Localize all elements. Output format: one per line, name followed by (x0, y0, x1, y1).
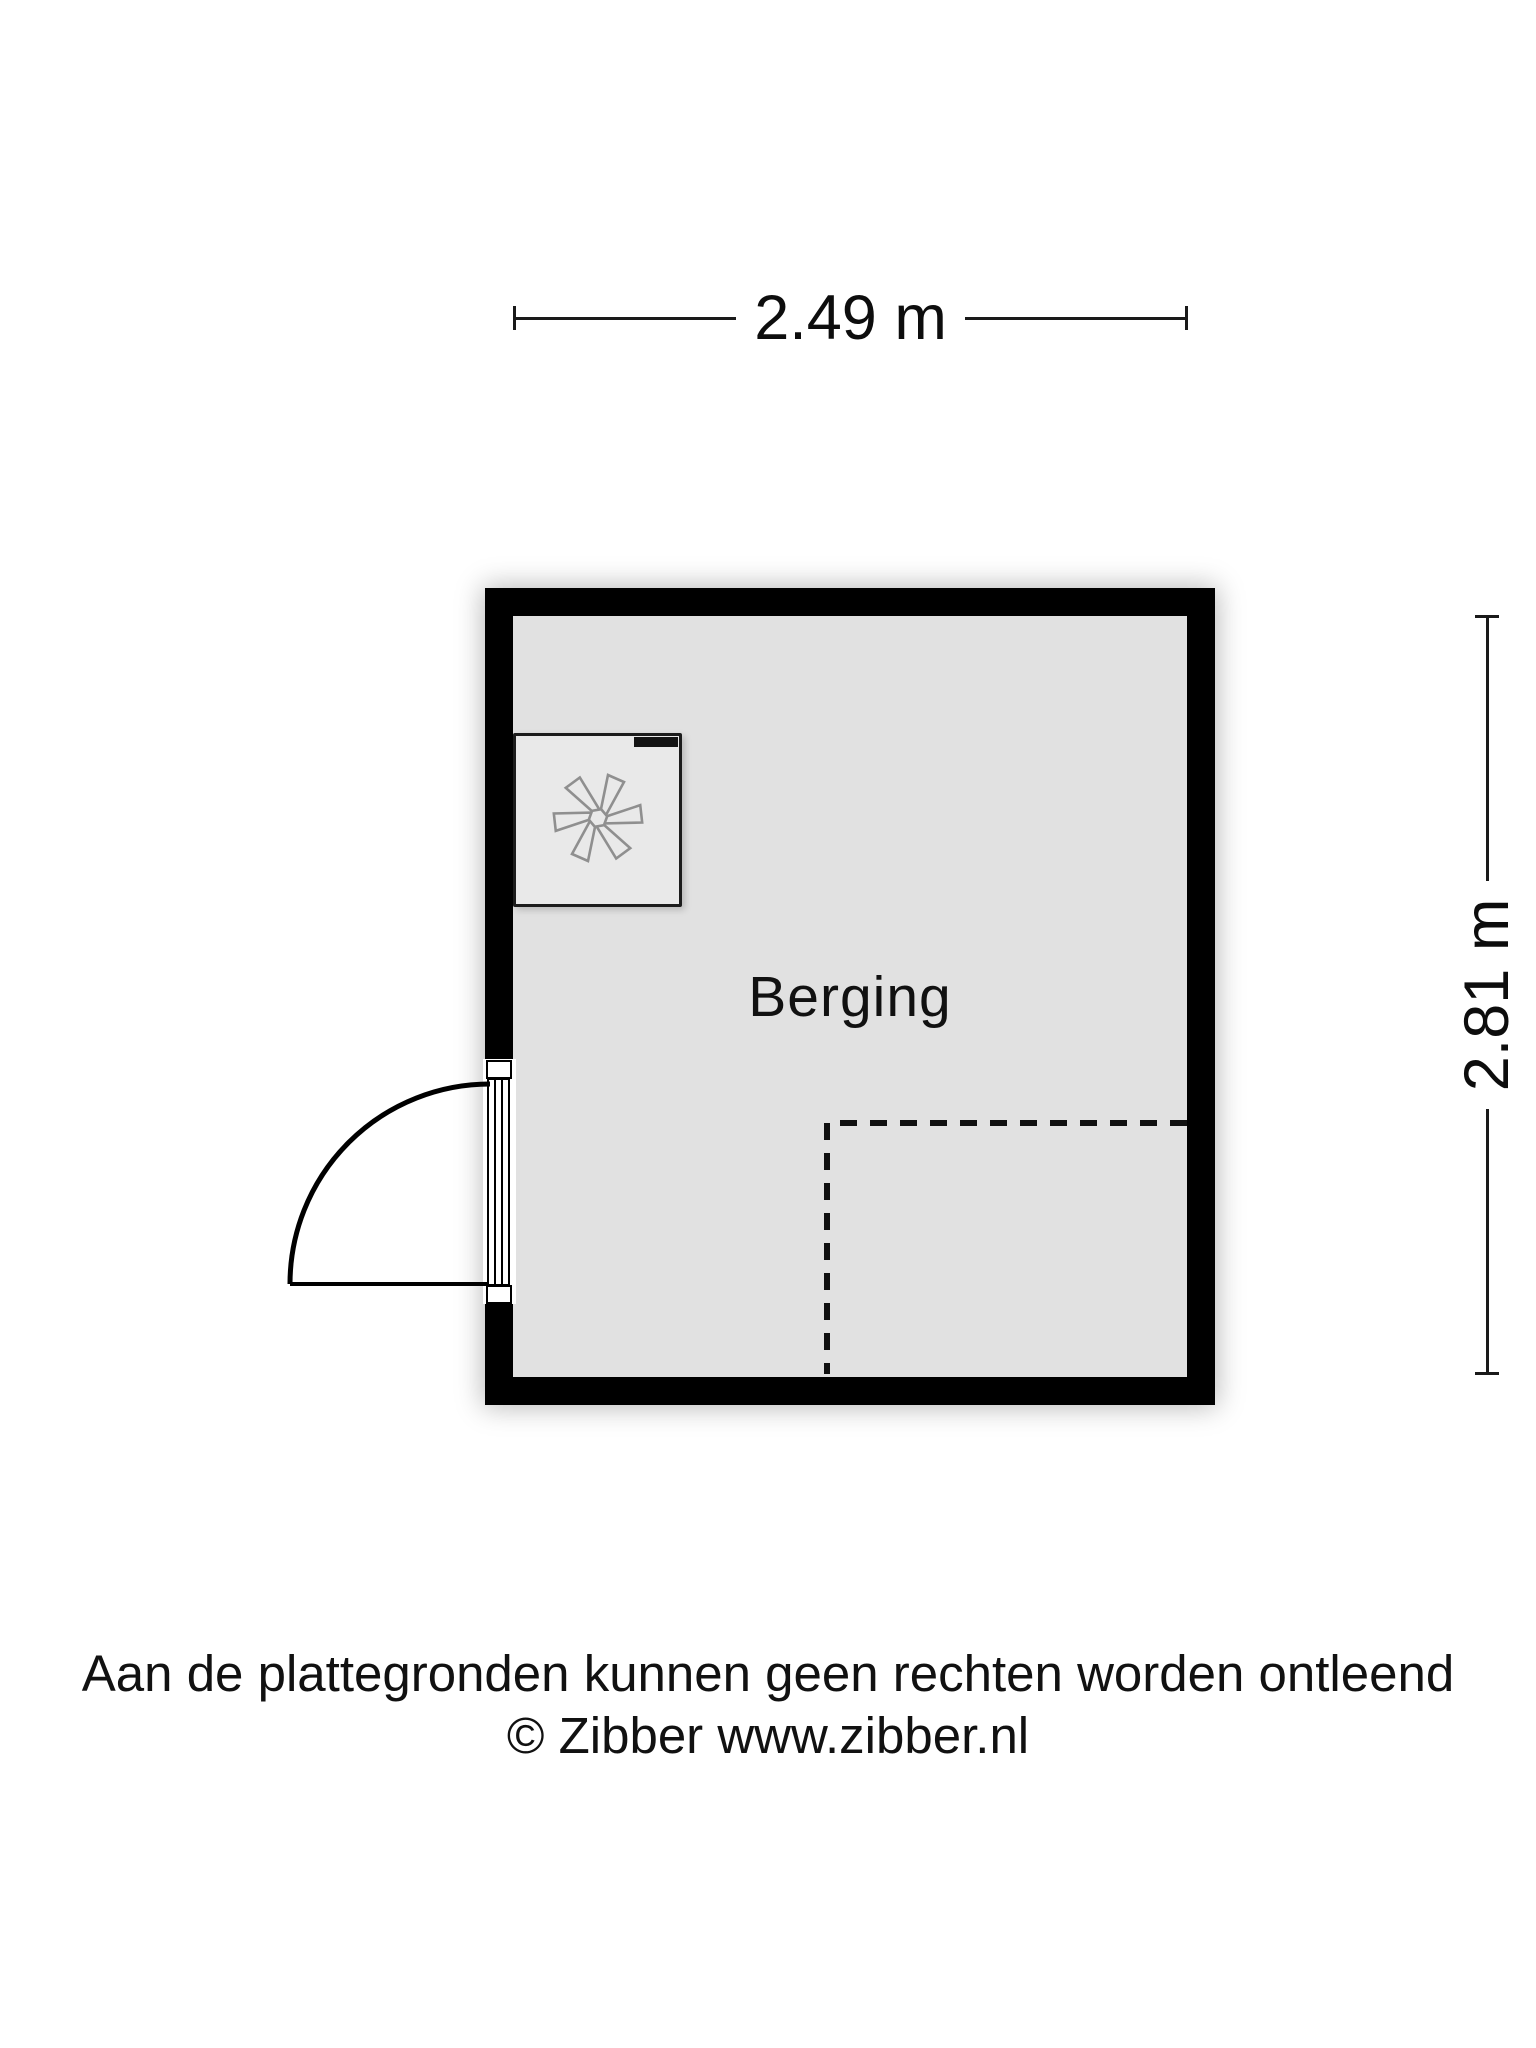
width-dimension: 2.49 m (513, 278, 1188, 358)
floorplan-canvas: 2.49 m 2.81 m Berging (0, 0, 1536, 2048)
dimension-tick-right (1185, 306, 1188, 330)
door-leaf-line (494, 1080, 496, 1284)
height-dimension-label: 2.81 m (1456, 899, 1519, 1092)
dimension-line (965, 317, 1185, 320)
door-jamb-top (486, 1060, 512, 1079)
dimension-line (1486, 1109, 1489, 1372)
unit-top-bar (634, 737, 678, 747)
dimension-line (1486, 618, 1489, 881)
dimension-tick-bottom (1475, 1372, 1499, 1375)
door-leaf (487, 1078, 510, 1286)
door-jamb-bottom (486, 1285, 512, 1304)
door-swing-arc (290, 1084, 490, 1284)
room-label: Berging (513, 966, 1187, 1029)
ventilation-fan-icon (549, 769, 647, 867)
dimension-line (516, 317, 736, 320)
dimension-tick-top (1475, 615, 1499, 618)
footer: Aan de plattegronden kunnen geen rechten… (0, 1643, 1536, 1767)
ventilation-unit (513, 733, 682, 907)
disclaimer-text: Aan de plattegronden kunnen geen rechten… (0, 1643, 1536, 1705)
height-dimension: 2.81 m (1447, 615, 1527, 1375)
copyright-text: © Zibber www.zibber.nl (0, 1705, 1536, 1767)
width-dimension-label: 2.49 m (754, 287, 947, 350)
door-leaf-line (501, 1080, 503, 1284)
